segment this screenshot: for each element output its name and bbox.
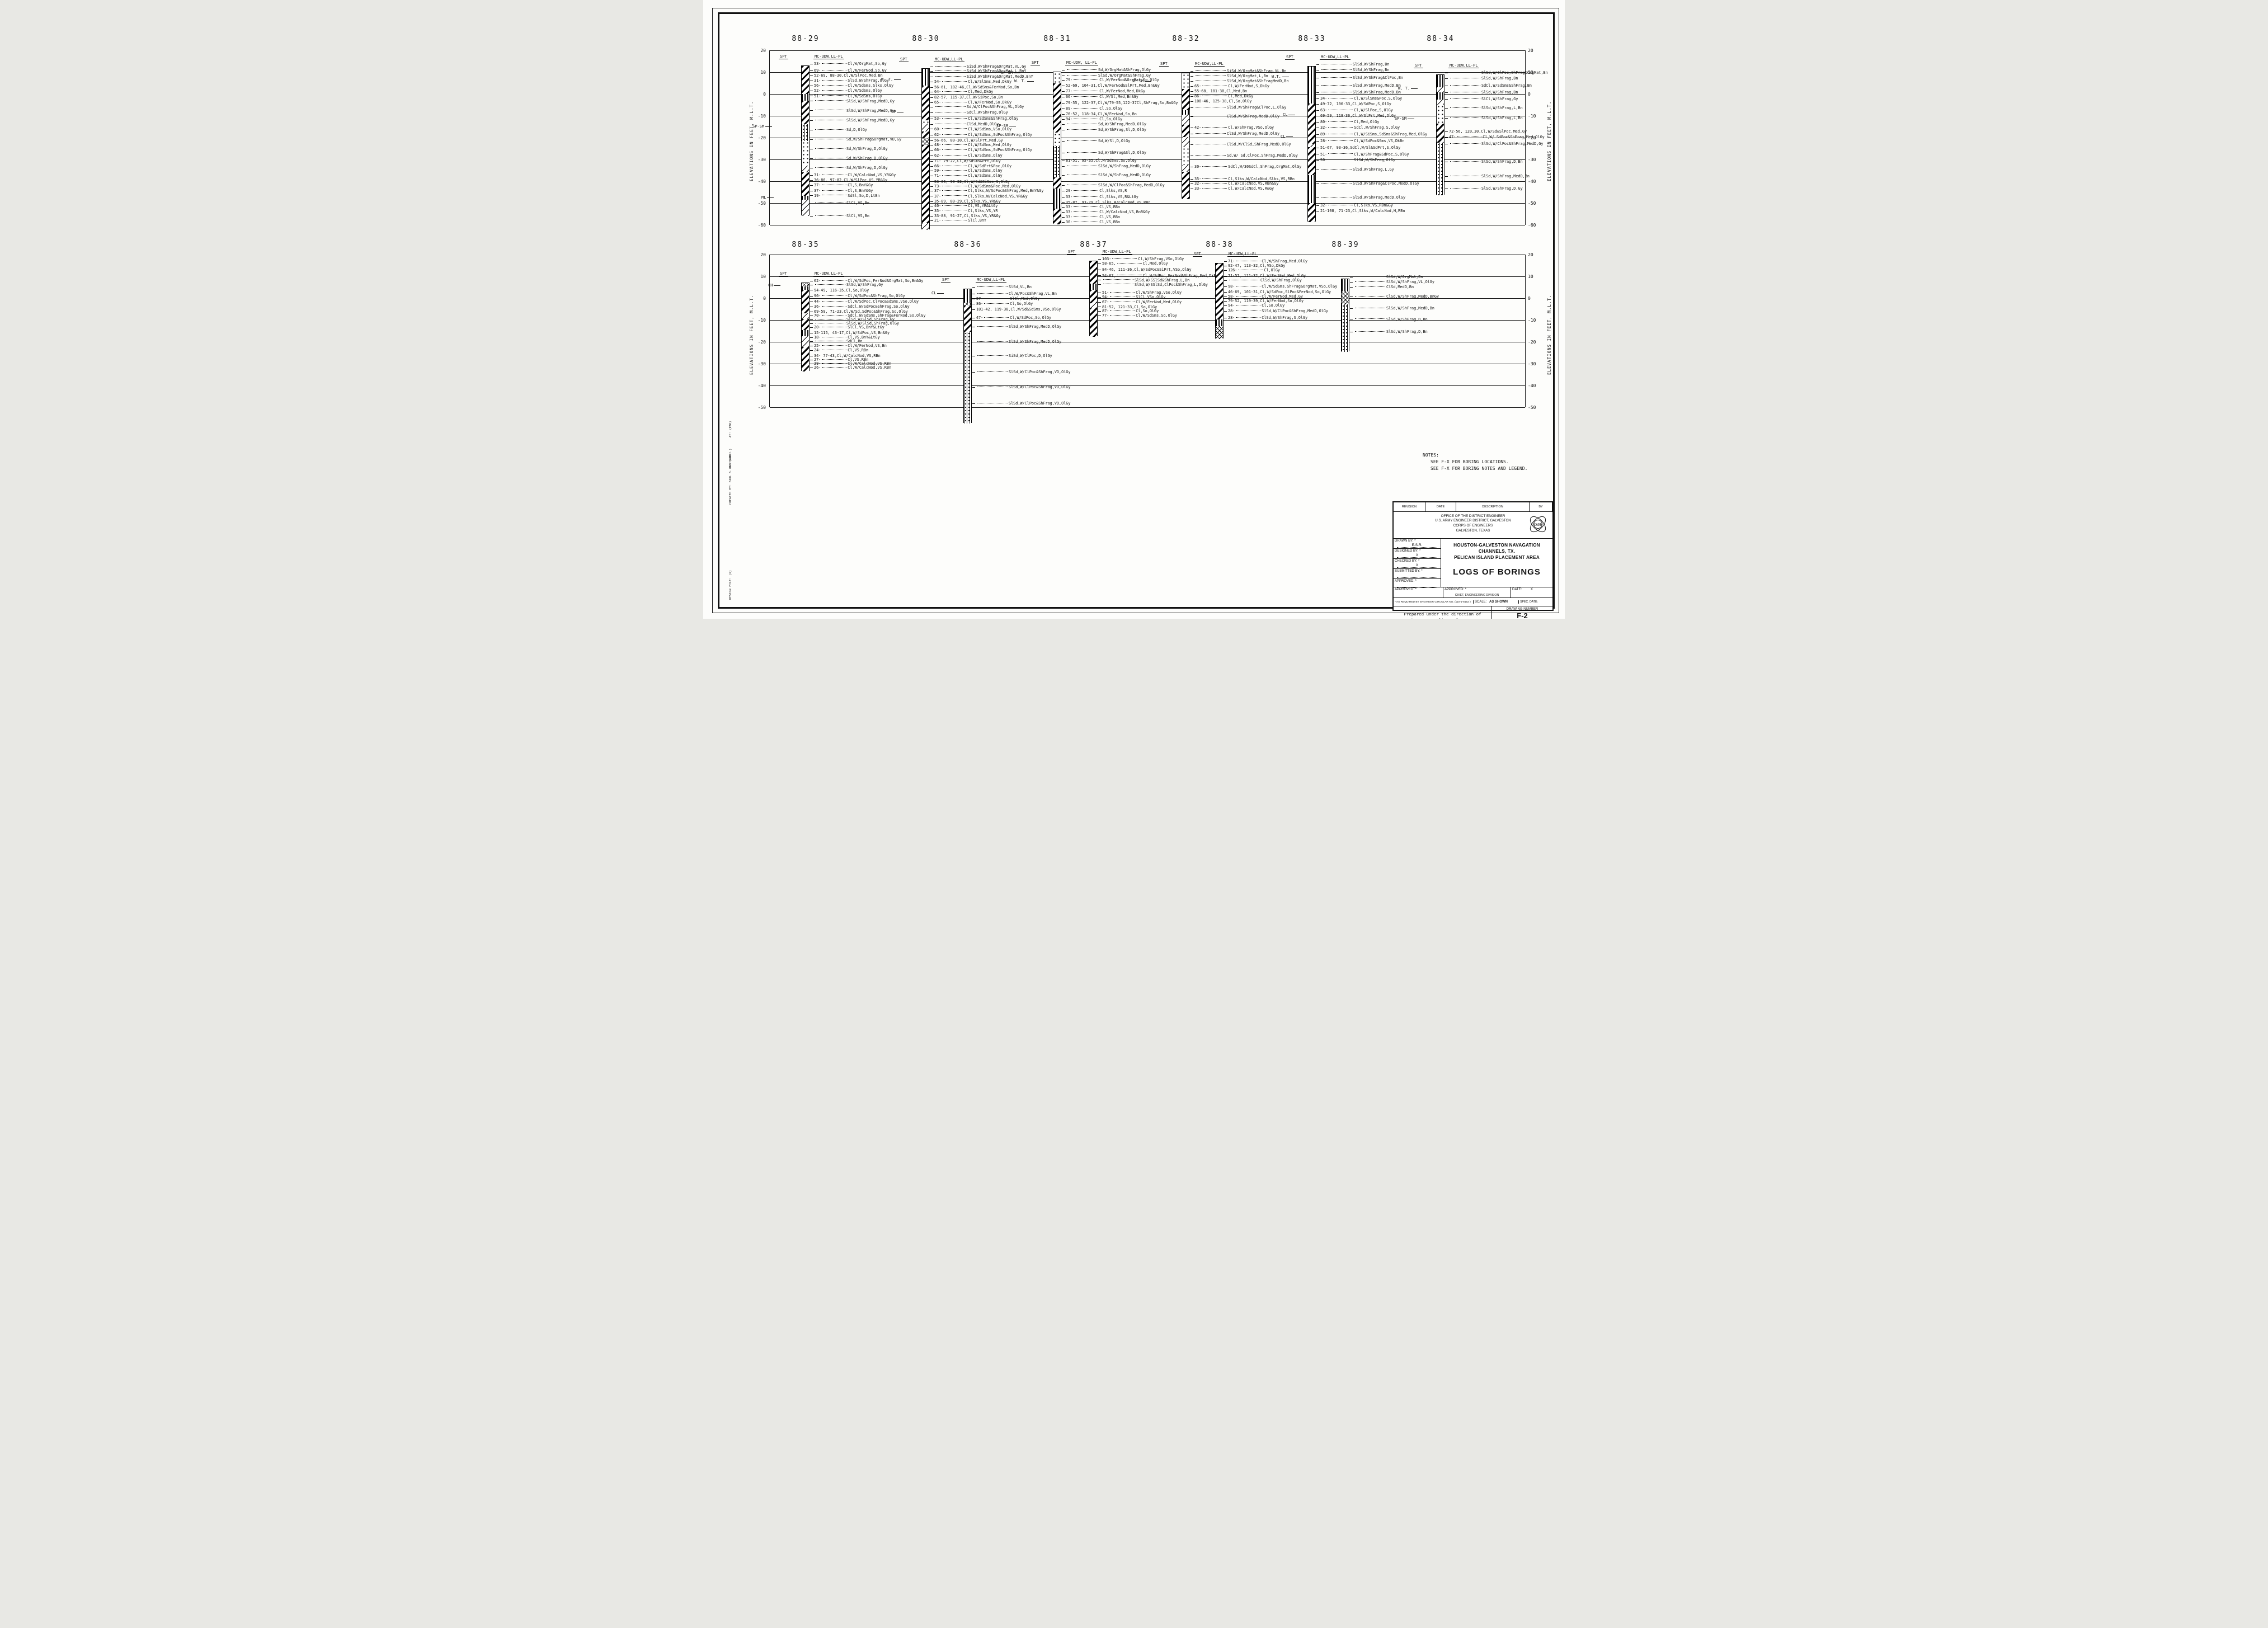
log-line: 35-89, 89-29,Cl,Slks,VS,YR&Gy <box>930 200 1043 204</box>
log-line: SlSd,W/ShFrag,MedD,Gy <box>810 119 901 123</box>
stratum-pattern-d <box>1053 83 1061 133</box>
log-line-description: Cl,Med,DkGy <box>968 90 993 94</box>
boring-log-lines: 103-Cl,W/ShFrag,VSo,OlGy58-65,Cl,Med,OlG… <box>1098 257 1218 318</box>
log-line-numbers: 100-46, 125-38, <box>1194 100 1229 103</box>
prepared-line: Prepared under the direction of <box>1394 611 1491 617</box>
log-line-description: Cl,VS,RBn <box>1099 205 1120 209</box>
soil-class-label: SP-SM <box>1001 70 1020 75</box>
log-line-description: SlSd,W/ShFrag,Gy <box>846 283 883 287</box>
log-line-description: SlSd,W/ShFrag,Bn <box>1481 91 1518 95</box>
log-line-numbers: 53- <box>814 62 821 66</box>
leader-dots <box>1117 263 1142 264</box>
elevation-tick-left: -20 <box>752 135 766 140</box>
log-line-description: Cl,VS,RBn <box>1099 220 1120 224</box>
log-line: 50-SlSd,W/ShFrag,OlGy <box>1316 158 1427 162</box>
log-line: 86-Cl,Med,DkGy <box>1191 95 1301 98</box>
mc-udw-ll-pl-header: MC-UDW,LL-PL <box>1448 63 1479 68</box>
log-line-description: SdCl,W/30SdCl,ShFrag,OrgMat,OlGy <box>1228 165 1301 169</box>
elevation-gridline <box>770 385 1525 386</box>
log-line-description: SlSd,W/ShFrag&ClPoc,Bn <box>1353 76 1403 80</box>
log-line-numbers: 31- <box>814 173 821 177</box>
stratum-pattern-p <box>1053 133 1061 146</box>
log-line-description: SlSd,W/ShFrag,OlGy <box>1354 158 1395 162</box>
log-line: 60-Cl,W/SdSms,VSo,OlGy <box>930 128 1043 131</box>
log-line-numbers: 40- <box>934 204 941 208</box>
log-line: 36-SdCl,W/SdPoc&ShFrag,So,OlGy <box>810 305 925 309</box>
leader-dots <box>1202 86 1227 86</box>
log-line-numbers: 60- <box>934 128 941 131</box>
leader-dots <box>977 286 1008 287</box>
stratum-pattern-d <box>1308 147 1315 175</box>
log-line: SlSd,W/ShFrag,L,Bn <box>1445 106 1548 110</box>
leader-dots <box>942 102 967 102</box>
stratum-pattern-l <box>1437 87 1444 92</box>
log-line-description: Cl,W/FerNod&SlPrt,Med,Bn&Gy <box>1098 84 1160 88</box>
boring-column-88-39 <box>1341 279 1349 351</box>
log-line: Sd,W/ShFrag,D,OlGy <box>810 166 901 170</box>
leader-dots <box>1196 116 1226 116</box>
elevation-tick-right: -50 <box>1528 201 1541 206</box>
leader-dots <box>822 337 846 337</box>
leader-dots <box>1355 318 1385 319</box>
log-line: 21-108, 71-23,Cl,Slks,W/CalcNod,H,RBn <box>1316 209 1427 213</box>
stratum-pattern-d <box>1437 124 1444 143</box>
boring-title: 88-37 <box>1080 241 1107 249</box>
spt-column-header: SPT <box>779 54 788 59</box>
log-line-numbers: 62- <box>814 279 821 283</box>
log-line-numbers: 63- <box>1320 109 1327 112</box>
log-line-numbers: 47- <box>976 316 983 320</box>
log-line-description: Cl,W/SlPoc,S,OlGy <box>1354 109 1393 112</box>
stratum-pattern-d <box>964 305 971 332</box>
log-line: Sd,W/ShFrag&Sl,D,OlGy <box>1062 151 1178 155</box>
leader-dots <box>815 139 845 139</box>
log-line-numbers: 35- <box>934 209 941 213</box>
log-line: ClSd,MedD,Bn <box>1350 285 1439 289</box>
log-line-description: Cl,Med,Bn <box>1226 90 1247 93</box>
leader-dots <box>942 186 967 186</box>
log-line-description: Cl,Slks,VS,R&LtGy <box>1099 195 1138 199</box>
elevation-gridline <box>770 255 1525 255</box>
note-line: SEE F-X FOR BORING NOTES AND LEGEND. <box>1423 465 1527 472</box>
leader-dots <box>815 203 845 203</box>
stratum-pattern-d <box>1182 172 1189 199</box>
leader-dots <box>1450 78 1480 78</box>
leader-dots <box>822 190 846 191</box>
log-line-description: Cl,VS,RBn <box>1099 215 1120 219</box>
log-line-description: Cl,W/SlPoc,VS,YR&Gy <box>844 178 887 182</box>
log-line-description: Sd,W/ShFrag,D,OlGy <box>846 166 888 170</box>
stratum-pattern-d <box>1308 203 1315 222</box>
signature-value: X <box>1397 563 1437 568</box>
log-line: 54-67,Cl,W/SdPoc,FerNod&ShFrag,Med,DkBn <box>1098 274 1218 278</box>
log-line-description: Cl,W/SdSms,OlGy <box>848 89 882 93</box>
log-line-description: Cl,So,OlGy <box>1099 107 1122 111</box>
notes-block: NOTES: SEE F-X FOR BORING LOCATIONS.SEE … <box>1423 452 1527 472</box>
mc-udw-ll-pl-header: MC-UDW,LL-PL <box>934 57 964 62</box>
log-line-description: Sd,W/ShFrag,D,OlGy <box>846 157 888 161</box>
revision-header-revision: REVISION <box>1394 502 1425 511</box>
boring-title: 88-33 <box>1298 35 1325 43</box>
log-line: 42-Cl,W/ShFrag,VSo,OlGy <box>1191 126 1301 130</box>
log-line: 28-ClSd,W/ShFrag,S,OlGy <box>1224 316 1337 320</box>
log-line: SlSd,W/ShFrag,VL,OlGy <box>1350 280 1439 284</box>
log-line-numbers: 66- <box>934 164 941 168</box>
log-line: 19-SdSl,So,D,LtBn <box>810 194 901 198</box>
log-line-description: SlSd,W/ClPoc&ShFrag,VD,OlGy <box>1009 370 1071 374</box>
elevation-tick-right: -60 <box>1528 223 1541 228</box>
log-line: SlSd,W/ShFrag,Bn <box>1316 63 1427 67</box>
log-line: 126-Cl,OlGy <box>1224 269 1337 272</box>
log-line: 32-SdCl,W/ShFrag,S,OlGy <box>1316 126 1427 130</box>
log-line: 65-Cl,W/FerNod,S,DkGy <box>1191 84 1301 88</box>
log-line-numbers: 56- <box>814 84 821 88</box>
elevation-tick-right: -40 <box>1528 383 1541 388</box>
signature-value: X <box>1397 553 1437 558</box>
log-line-description: Cl,W/SdSms,Med,OlGy <box>968 143 1011 147</box>
log-line-numbers: 51- <box>814 95 821 98</box>
soil-class-label: CL <box>1283 112 1295 117</box>
log-line-numbers: 37- <box>814 189 821 193</box>
leader-dots <box>1110 297 1135 297</box>
elevation-tick-right: -10 <box>1528 318 1541 323</box>
log-line-description: Cl,W/SdSms,Slks,OlGy <box>848 84 893 88</box>
notes-title: NOTES: <box>1423 452 1527 459</box>
log-line-description: SlSd,W/ShFrag,MedD,OlGy <box>1009 340 1061 344</box>
log-line-description: SlSd,W/OrgMat&ShFragMedD,Bn <box>1227 79 1289 83</box>
elevation-tick-left: 0 <box>752 296 766 301</box>
log-line-numbers: 35-89, 89-29, <box>934 200 964 204</box>
leader-dots <box>822 327 846 327</box>
log-line: SlSd,W/ShFrag,MedD,Gy <box>810 100 901 103</box>
log-line: ClSd,W/ShFrag,MedD,BnGy <box>1350 295 1439 299</box>
log-line-description: Cl,W/SdSms,So,OlGy <box>1095 159 1137 163</box>
log-line-description: ClSd,W/ShFrag,MedD,OlGy <box>1227 132 1279 136</box>
elevation-tick-left: 0 <box>752 92 766 97</box>
log-line: SlCl,W/ShFrag,Gy <box>1445 97 1548 101</box>
log-line-description: Sd,W/ShFrag,Sl,D,OlGy <box>1098 128 1146 132</box>
log-line-description: SlSd,W/ShFrag&ClPoc,MedD,OlGy <box>1353 182 1419 186</box>
log-line: SlSd,W/ShFrag,Bn <box>1445 77 1548 81</box>
stratum-pattern-p <box>1182 73 1189 89</box>
elevation-axis-label-right: ELEVATIONS IN FEET, M.L.T. <box>1547 294 1552 374</box>
log-line-description: Cl,W/SdSms,SdPoc&ShFrag,OlGy <box>968 133 1032 137</box>
log-line: SlSd,W/ShFrag,MedD,Bn <box>1316 91 1427 95</box>
margin-stamp: CREATED BY: EARL S. RICHARD <box>729 455 732 505</box>
log-line-numbers: 89- <box>1320 133 1327 137</box>
leader-dots <box>942 118 967 119</box>
log-line-description: Cl,So,OlGy <box>1010 302 1033 306</box>
log-line-description: SlCl,VS,BnY&LtGy <box>848 326 884 330</box>
log-line-description: Cl,VSo,DkGy <box>1260 264 1285 268</box>
leader-dots <box>1067 175 1097 175</box>
leader-dots <box>1328 140 1353 141</box>
elevation-tick-left: -10 <box>752 318 766 323</box>
leader-dots <box>1067 185 1097 185</box>
stratum-pattern-l <box>922 223 929 230</box>
log-line: 36-86, 97-82,Cl,W/SlPoc,VS,YR&Gy <box>810 178 901 182</box>
log-line: 18-Cl,VS,BnY&LtGy <box>810 336 925 340</box>
log-line-numbers: 46-69, 101-31, <box>1228 290 1260 294</box>
stratum-pattern-v <box>1308 67 1315 103</box>
boring-column-88-38 <box>1215 263 1224 338</box>
boring-log-lines: Sd,W/OrgMat&ShFrag,OlGySlSd,W/OrgMat&ShF… <box>1062 68 1178 224</box>
stratum-pattern-v <box>802 94 809 101</box>
log-line-description: Cl,W/SlSms&Poc,S,OlGy <box>1354 97 1402 101</box>
log-line-description: SlSd,W/ClPoc&ShFrag,MedD,Gy <box>1481 142 1544 146</box>
boring-column-88-29 <box>801 65 810 215</box>
leader-dots <box>1074 190 1098 191</box>
log-line-description: Cl,Slks,W/SdPoc&ShFrag,Med,BnY&Gy <box>968 189 1043 193</box>
leader-dots <box>1321 197 1352 197</box>
soil-class-label: SP-SM <box>1395 116 1414 121</box>
leader-dots <box>822 95 846 96</box>
approved-left-label: APPROVED: * <box>1394 587 1443 597</box>
leader-dots <box>822 70 846 70</box>
log-line-numbers: 51- <box>1320 153 1327 157</box>
log-line-description: Cl,W/79-55,122-37Cl,ShFrag,So,Bn&Gy <box>1098 101 1178 105</box>
log-line: 63-Cl,W/SlPoc,S,OlGy <box>1316 109 1427 112</box>
log-line-description: Cl,W/SdPoc,FerNod&ShFrag,Med,DkBn <box>1143 274 1218 278</box>
log-line: 20-SlCl,VS,BnY&LtGy <box>810 326 925 330</box>
log-line-description: SlSd,W/ShFrag,VL,OlGy <box>1386 280 1434 284</box>
signature-row: SUBMITTED BY: * <box>1394 569 1441 579</box>
log-line-numbers: 66- <box>1066 95 1072 99</box>
log-line-description: Cl,So,OlGy <box>1229 100 1251 103</box>
stratum-pattern-d <box>1216 264 1223 319</box>
signature-label: DRAWN BY: * <box>1395 539 1439 543</box>
spt-column-header: SPT <box>1414 63 1423 68</box>
log-line: 28-SlSd,W/ClPoc&ShFrag,MedD,OlGy <box>1224 309 1337 313</box>
leader-dots <box>822 195 846 195</box>
log-line-description: Cl,W/SiPoc,So,Bn <box>966 96 1003 100</box>
log-line: 94-Cl,So,OlGy <box>1224 304 1337 308</box>
elevation-tick-right: 20 <box>1528 48 1541 53</box>
log-line: 35-87, 93-29,Cl,Slks,W/CalcNod,VS,RBn <box>1062 201 1178 205</box>
leader-dots <box>1067 75 1097 76</box>
leader-dots <box>942 134 967 135</box>
log-line: 56-61, 102-46,Cl,W/SdSms&FerNod,So,Bn <box>930 86 1043 90</box>
log-line-numbers: 37- <box>934 189 941 193</box>
boring-title: 88-29 <box>792 35 819 43</box>
log-line-description: SlCl,VS,Bn <box>846 214 869 218</box>
log-line-description: Sd,W/OrgMat&ShFrag,OlGy <box>1098 68 1151 72</box>
stratum-pattern-d <box>1090 308 1097 337</box>
log-line-description: Cl,W/ShFrag,Med,OlGy <box>1262 260 1307 264</box>
leader-dots <box>935 76 966 77</box>
leader-dots <box>822 367 846 368</box>
elevation-axis-label-left: ELEVATIONS IN FEET, M.L.T. <box>749 101 754 181</box>
log-line-description: Cl,So,OlGy <box>1136 309 1159 313</box>
leader-dots <box>1355 276 1385 277</box>
log-line: SlSd,W/SSlSd&ShFrag,L,Bn <box>1098 279 1218 283</box>
leader-dots <box>1112 258 1137 259</box>
leader-dots <box>822 280 846 281</box>
leader-dots <box>935 106 966 107</box>
log-line-numbers: 89- <box>1066 107 1072 111</box>
stratum-pattern-d <box>802 172 809 196</box>
leader-dots <box>984 303 1009 304</box>
log-line-description: Cl,W/SdPoc,S,OlGy <box>1352 102 1391 106</box>
leader-dots <box>942 170 967 171</box>
soil-class-label: W. T. <box>1014 79 1034 83</box>
spt-column-header: SPT <box>779 271 788 276</box>
log-line: 98-Cl,W/SdSms,ShFrag&OrgMat,VSo,OlGy <box>1224 285 1337 289</box>
log-line-description: SlSd,W/ShFrag,D,Bn <box>1481 160 1523 164</box>
leader-dots <box>1074 206 1098 207</box>
log-line-description: SlCl,Med,OlGy <box>1010 297 1039 301</box>
log-line: Sd,D,OlGy <box>810 128 901 132</box>
leader-dots <box>822 301 846 302</box>
log-line: 28-Cl,W/SdPoc&Sms,VS,DkBn <box>1316 139 1427 143</box>
log-line-description: Cl,W/FerNod,Med,Gy <box>1262 295 1303 299</box>
log-line: 46-69, 101-31,Cl,W/SdPoc,SlPoc&FerNod,So… <box>1224 290 1337 294</box>
log-line-numbers: 80- <box>1320 120 1327 124</box>
log-line-description: Cl,W/SdPoc,So,OlGy <box>1010 316 1051 320</box>
spt-column-header: SPT <box>941 277 951 283</box>
log-line: 57-SlCl,Med,OlGy <box>972 297 1071 301</box>
boring-log-lines: SlSd,VL,BnCl,W/Poc&ShFrag,VL,Bn57-SlCl,M… <box>972 285 1071 406</box>
log-line: 53-66, 99-32,Cl,W/Sd&SiSms,S,OlGy <box>930 180 1043 184</box>
log-line-description: ClSd,W/ClSd,ShFrag,MedD,OlGy <box>1227 143 1291 147</box>
prepared-line: Robert B. Gatlin, Col., C.E., <box>1394 617 1491 619</box>
log-line: Cl,W/Poc&ShFrag,VL,Bn <box>972 292 1071 296</box>
log-line-numbers: 33-88, 91-27, <box>934 214 964 218</box>
log-line-description: Cl,Slks,VS,YR&Gy <box>964 200 1000 204</box>
log-line: SlSd,W/OrgMat&ShFragMedD,Bn <box>1191 79 1301 83</box>
log-line-description: Cl,So,OlGy <box>1099 117 1122 121</box>
log-line-description: SlSd,W/SSlSd&ShFrag,L,Bn <box>1135 279 1189 283</box>
log-line-numbers: 31- <box>814 79 821 83</box>
log-line: 94-49, 116-35,Cl,So,OlGy <box>810 289 925 293</box>
log-line-numbers: 25- <box>814 344 821 348</box>
log-line-description: Cl,W/ShFrag,VSo,OlGy <box>1136 291 1182 295</box>
log-line-numbers: 44- <box>814 300 821 304</box>
notes-lines: SEE F-X FOR BORING LOCATIONS.SEE F-X FOR… <box>1423 459 1527 472</box>
stratum-pattern-d <box>1053 209 1061 224</box>
leader-dots <box>942 128 967 129</box>
stratum-pattern-v <box>802 330 809 336</box>
leader-dots <box>1067 140 1097 141</box>
leader-dots <box>977 293 1008 294</box>
stratum-pattern-v <box>922 69 929 86</box>
log-line-description: SlCl,W/ShFrag,Gy <box>1481 97 1518 101</box>
log-line-description: Cl,W/SdPoc,ClPoc&SdSms,VSo,OlGy <box>848 300 919 304</box>
spt-column-header: SPT <box>899 57 909 62</box>
log-line-numbers: 30- <box>1066 220 1072 224</box>
leader-dots <box>1355 308 1385 308</box>
stratum-pattern-d <box>1182 125 1189 137</box>
log-line-description: Cl,W/SdPoc&SiPrt,VSo,OlGy <box>1134 268 1191 272</box>
log-line-numbers: 36-86, 97-82, <box>814 178 844 182</box>
spec-date-label: SPEC. DATE: <box>1518 600 1552 604</box>
log-line: 92-47, 113-32,Cl,VSo,DkGy <box>1224 264 1337 268</box>
log-line: 56-66, 89-30,Cl,W/SlPrt,Med,Gy <box>930 139 1043 143</box>
log-line-numbers: 92-47, 113-32, <box>1228 264 1260 268</box>
log-line-numbers: 84-46, 111-36, <box>1102 268 1134 272</box>
leader-dots <box>1236 296 1260 297</box>
boring-column-88-34 <box>1436 74 1444 195</box>
log-line: 79-52, 119-39,Cl,W/FerNod,So,OlGy <box>1224 299 1337 303</box>
log-line: SlSd,W/ShFrag,D,Bn <box>1350 330 1439 334</box>
stratum-pattern-vp <box>1053 146 1061 177</box>
log-line-description: Cl,W/CalcNod,VS,YR&Gy <box>848 173 896 177</box>
stratum-pattern-l <box>802 336 809 347</box>
log-line-description: Cl,W/SdSms,ShFrag&OrgMat,VSo,OlGy <box>1262 285 1337 289</box>
leader-dots <box>1202 166 1227 167</box>
mc-udw-ll-pl-header: MC-UDW, LL-PL <box>1065 60 1098 65</box>
log-line-description: Cl,Slks,W/CalcNod,Slks,VS,RBn <box>1228 177 1295 181</box>
log-line-description: SlSd,W/ShFrag,L,Gy <box>1353 168 1394 172</box>
log-line-description: SlSd,W/ShFrag,Bn <box>1353 68 1389 72</box>
boring-column-88-31 <box>1053 72 1061 224</box>
stratum-pattern-x <box>1216 326 1223 339</box>
date-value: X <box>1531 588 1533 591</box>
log-line-numbers: 77- <box>1066 90 1072 93</box>
boring-log-lines: 53-Cl,W/OrgMat,So,Gy69-Cl,W/FerNod,So,Gy… <box>810 62 901 218</box>
log-line-numbers: 86- <box>976 302 983 306</box>
drawing-number-label: DRAWING NUMBER <box>1492 608 1552 611</box>
signature-label: CHECKED BY: * <box>1395 559 1439 563</box>
log-line: 26-Cl,W/CalcNod,VS,RBn <box>810 366 925 370</box>
log-line-numbers: 81-52, 121-33, <box>1102 305 1134 309</box>
log-line: 21-SlCl,BnY <box>930 219 1043 223</box>
stratum-pattern-v <box>1308 175 1315 203</box>
stratum-pattern-d <box>1053 177 1061 189</box>
boring-log-lines: SlSd,W/ShFrag,BnSlSd,W/ShFrag,BnSlSd,W/S… <box>1316 63 1427 213</box>
log-line-description: Cl,W/FerNod,VS,Bn <box>848 344 887 348</box>
log-line: ClSd,W/ClSd,ShFrag,MedD,OlGy <box>1191 143 1301 147</box>
leader-dots <box>1074 119 1098 119</box>
log-line-description: SlCl,BnY <box>968 219 986 223</box>
log-line: 71- 79-27,Cl,W/SdSms&Prt,OlGy <box>930 159 1043 163</box>
log-line-numbers: 98- <box>1228 285 1235 289</box>
log-line: SlSd,W/ShFrag,D,Bn <box>1445 160 1548 164</box>
elevation-tick-left: -40 <box>752 179 766 184</box>
log-line: SlSd,W/ShFrag,MedD,OlGy <box>972 325 1071 329</box>
approval-row: APPROVED: * APPROVED: * CHIEF, ENGINEERI… <box>1394 587 1552 598</box>
leader-dots <box>1450 176 1480 176</box>
spt-column-header: SPT <box>1159 62 1169 67</box>
log-line-description: SlSd,W/ShFrag,Bn <box>1353 63 1389 67</box>
log-line-description: SlSd,W/ShFrag,MedD,OlGy <box>1009 325 1061 329</box>
log-line-description: SdCl,W/SdPoc&ShFrag,So,OlGy <box>848 305 910 309</box>
log-line-numbers: 28- <box>1228 316 1235 320</box>
title-block: REVISIONDATEDESCRIPTIONBY OFFICE OF THE … <box>1392 501 1554 611</box>
boring-column-88-36 <box>963 289 972 423</box>
drawing-titles: HOUSTON-GALVESTON NAVAGATION CHANNELS, T… <box>1441 539 1552 587</box>
leader-dots <box>822 185 846 185</box>
mc-udw-ll-pl-header: MC-UDW,LL-PL <box>1102 250 1132 255</box>
leader-dots <box>1321 64 1352 64</box>
log-line-description: SlSd,W/ShFrag,MedD,Gy <box>846 100 895 103</box>
log-line: 84-46, 111-36,Cl,W/SdPoc&SiPrt,VSo,OlGy <box>1098 268 1218 272</box>
stratum-pattern-d <box>802 101 809 124</box>
log-line-description: SdCl,W/Sl&SdPrt,S,OlGy <box>1350 146 1400 150</box>
log-line-description: Cl,W/SdSms&ShFrag,OlGy <box>968 117 1018 121</box>
revision-header-description: DESCRIPTION <box>1456 502 1530 511</box>
leader-dots <box>1355 296 1385 297</box>
log-line-numbers: 62- <box>934 133 941 137</box>
log-line-description: Cl,VS,YR&LtGy <box>968 204 997 208</box>
log-line: Sd,W/ Sd,ClPoc,ShFrag,MedD,OlGy <box>1191 154 1301 158</box>
log-line-numbers: 35- <box>1194 177 1201 181</box>
log-line: 33-Cl,W/CalcNod,VS,BnR&Gy <box>1062 210 1178 214</box>
log-line: 87-Cl,So,OlGy <box>1098 309 1218 313</box>
leader-dots <box>984 298 1009 299</box>
spt-column-header: SPT <box>1067 250 1076 255</box>
log-line-description: Cl,Slks,VS,YR <box>968 209 997 213</box>
